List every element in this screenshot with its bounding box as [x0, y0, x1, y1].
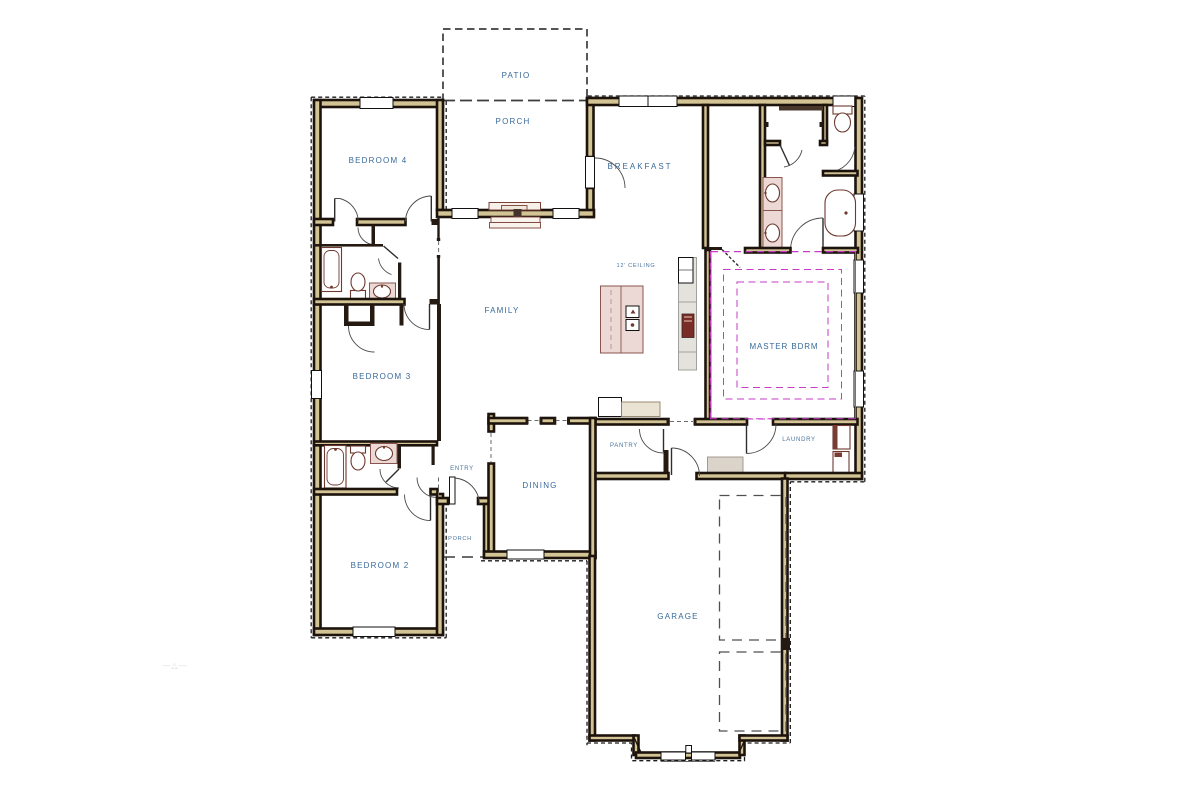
svg-text:MASTER BDRM: MASTER BDRM [749, 342, 818, 351]
svg-text:12' CEILING: 12' CEILING [617, 263, 656, 269]
svg-text:LAUNDRY: LAUNDRY [782, 437, 815, 443]
svg-text:BREAKFAST: BREAKFAST [607, 162, 672, 171]
svg-text:FAMILY: FAMILY [484, 306, 519, 315]
svg-text:BEDROOM 4: BEDROOM 4 [349, 156, 408, 165]
svg-text:GARAGE: GARAGE [657, 612, 698, 621]
svg-text:—△—: —△— [162, 661, 187, 670]
svg-text:BEDROOM 3: BEDROOM 3 [353, 372, 412, 381]
svg-text:PORCH: PORCH [448, 536, 472, 542]
svg-text:ENTRY: ENTRY [450, 466, 474, 472]
svg-text:PORCH: PORCH [496, 117, 531, 126]
svg-text:BEDROOM 2: BEDROOM 2 [351, 561, 410, 570]
svg-text:PANTRY: PANTRY [610, 443, 638, 449]
svg-text:PATIO: PATIO [502, 71, 531, 80]
svg-text:DINING: DINING [522, 481, 557, 490]
